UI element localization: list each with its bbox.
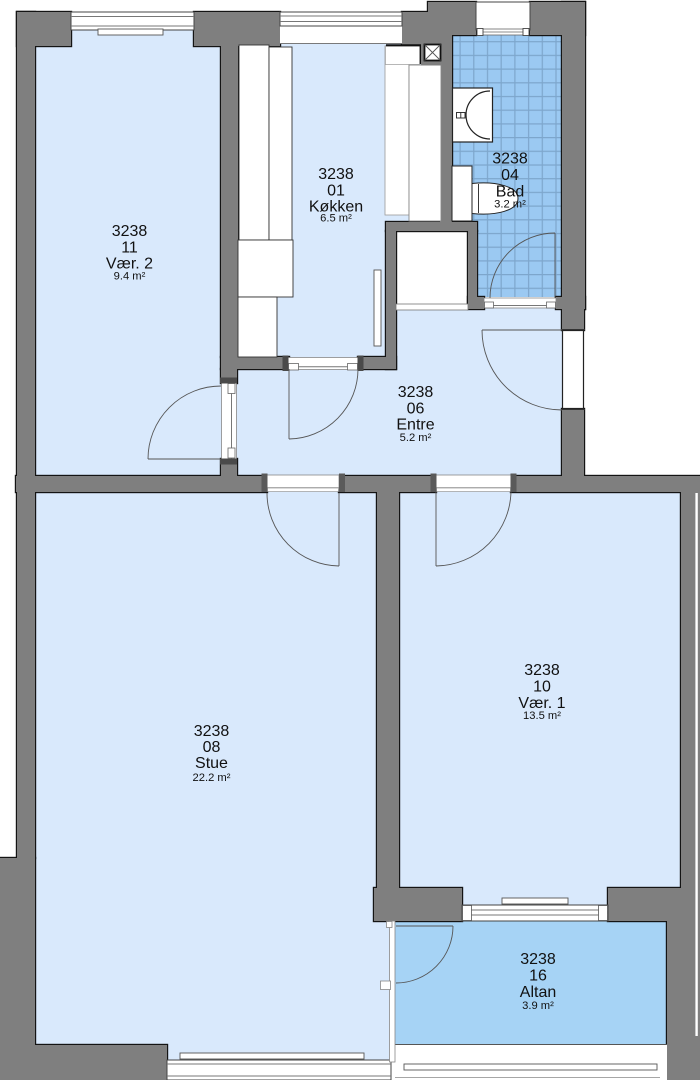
- svg-text:3.9 m²: 3.9 m²: [522, 1000, 554, 1012]
- svg-text:9.4 m²: 9.4 m²: [114, 271, 146, 283]
- svg-text:13.5 m²: 13.5 m²: [523, 710, 561, 722]
- svg-text:3238: 3238: [194, 723, 230, 740]
- svg-text:3238: 3238: [112, 223, 148, 240]
- svg-text:Stue: Stue: [195, 755, 228, 772]
- svg-text:Altan: Altan: [520, 984, 556, 1001]
- svg-text:22.2 m²: 22.2 m²: [193, 772, 231, 784]
- svg-text:16: 16: [529, 968, 547, 985]
- svg-text:11: 11: [121, 240, 138, 257]
- svg-text:3238: 3238: [398, 384, 434, 401]
- svg-text:3.2 m²: 3.2 m²: [494, 199, 526, 211]
- svg-text:6.5 m²: 6.5 m²: [320, 213, 352, 225]
- svg-text:5.2 m²: 5.2 m²: [400, 432, 432, 444]
- svg-text:3238: 3238: [524, 662, 560, 679]
- svg-text:3238: 3238: [318, 166, 354, 183]
- svg-text:04: 04: [501, 167, 519, 184]
- svg-text:3238: 3238: [492, 151, 528, 168]
- svg-text:08: 08: [203, 739, 221, 756]
- svg-text:3238: 3238: [520, 951, 556, 968]
- svg-text:Entre: Entre: [396, 417, 434, 434]
- svg-text:01: 01: [327, 183, 345, 200]
- svg-text:06: 06: [407, 401, 425, 418]
- svg-text:10: 10: [533, 679, 551, 696]
